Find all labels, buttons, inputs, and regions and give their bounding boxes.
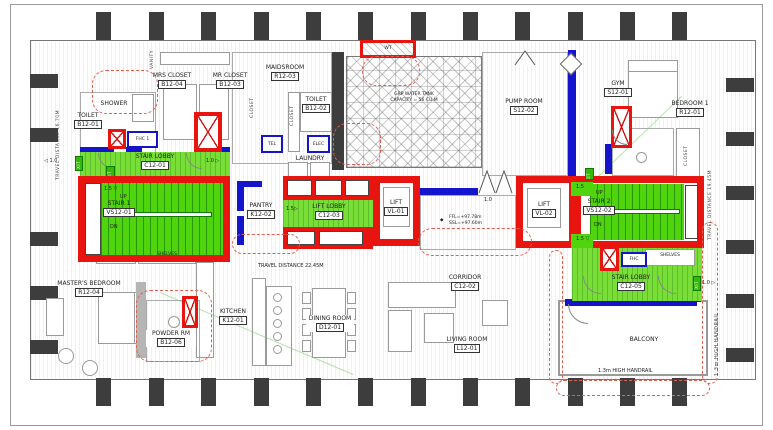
room-name: POWDER RM (146, 330, 196, 338)
arrow-left-icon: ◁ (44, 158, 48, 164)
column (306, 12, 321, 40)
column (96, 12, 111, 40)
room-name: PUMP ROOM (498, 98, 550, 106)
armchair (58, 348, 74, 364)
bed-pillows (628, 60, 678, 72)
room-label-mrs-closet: MRS CLOSET B12-04 (150, 72, 194, 89)
egress-arrow-lift-lobby: 1.5▷ (286, 206, 298, 212)
column (306, 378, 321, 406)
exit-tag: EXIT (75, 156, 83, 171)
room-label-master: MASTER'S BEDROOM R12-04 (56, 280, 122, 297)
room-label-shower: SHOWER (94, 100, 134, 108)
column (463, 12, 478, 40)
column (620, 12, 635, 40)
revision-cloud (556, 380, 710, 396)
room-label-pump-room: PUMP ROOM S12-02 (498, 98, 550, 115)
column (726, 294, 754, 308)
room-number: D12-01 (316, 323, 344, 333)
travel-distance-center: TRAVEL DISTANCE 22.45M (258, 263, 324, 269)
room-label-stair-lobby1: STAIR LOBBY C12-01 (128, 153, 182, 170)
tel-label: TEL (263, 142, 281, 148)
room-number: VS12-02 (583, 206, 614, 216)
egress-width: 1.5 (576, 236, 584, 242)
tel-box: TEL (261, 135, 283, 153)
sink (636, 152, 647, 163)
floor-plan-canvas: EXIT EXIT EXIT EXIT WT FHC 1 TEL (0, 0, 773, 430)
room-name: STAIR LOBBY (604, 274, 658, 282)
shelves-label-left: SHELVES (140, 252, 194, 258)
room-name: SHOWER (94, 100, 134, 108)
egress-width: 1.5 (286, 206, 294, 212)
travel-distance-left: TRAVEL DISTANCE 16.70M (56, 100, 61, 180)
arrow-right-icon: ▷ (294, 206, 298, 212)
egress-width: 1.0 (702, 280, 710, 286)
room-label-laundry: LAUNDRY (290, 155, 330, 163)
chair (302, 340, 311, 352)
stool (273, 306, 282, 315)
exit-label: EXIT (586, 173, 591, 180)
egress-width: 1.5 (104, 186, 112, 192)
column (726, 240, 754, 254)
room-name: MAIDSROOM (262, 64, 308, 72)
closet-label: CLOSET (290, 104, 295, 126)
room-name: DINING ROOM (306, 315, 354, 323)
room-label-bedroom1: BEDROOM 1 R12-01 (664, 100, 716, 117)
stair1-up: UP (120, 194, 127, 200)
fhc1-label: FHC 1 (129, 137, 156, 143)
exit-label: EXIT (694, 281, 699, 291)
column (149, 12, 164, 40)
exit-tag: EXIT (585, 168, 594, 180)
column (254, 378, 269, 406)
ffl-text: FFL=+97.78m (449, 215, 482, 221)
room-number: B12-01 (74, 120, 102, 130)
room-name: TOILET (66, 112, 110, 120)
diamond-marker-icon: ◆ (440, 218, 443, 223)
room-number: C12-05 (617, 282, 645, 292)
level-annotation: FFL=+97.78m SSL=+97.60m (449, 215, 482, 227)
exit-tag: EXIT (693, 276, 701, 291)
arrow-down-icon: ▽ (586, 236, 590, 242)
stool (273, 293, 282, 302)
room-number: K12-02 (247, 210, 274, 220)
room-name: TOILET (298, 96, 334, 104)
ssl-text: SSL=+97.60m (449, 221, 482, 227)
room-number: B12-02 (302, 104, 330, 114)
room-label-lift1: LIFT VL-01 (380, 199, 412, 216)
room-number: R12-04 (75, 288, 103, 298)
double-door-icon (478, 170, 514, 194)
revision-cloud (232, 234, 300, 254)
room-label-lift2: LIFT VL-02 (528, 201, 560, 218)
elec-box: ELEC (307, 135, 330, 153)
room-name: STAIR 2 (580, 198, 618, 206)
room-number: C12-01 (141, 161, 169, 171)
blue-wall (605, 144, 612, 174)
vanity-counter (160, 52, 230, 65)
closet-label: CLOSET (684, 144, 689, 166)
room-label-lift-lobby: LIFT LOBBY C12-03 (304, 203, 354, 220)
fire-shaft-box (194, 112, 222, 152)
room-label-stair1: STAIR 1 VS12-01 (100, 200, 138, 217)
egress-arrow-right-lobby2: 1.0 ▷ (702, 280, 715, 286)
room-label-pantry: PANTRY K12-02 (242, 202, 280, 219)
room-label-toilet2: TOILET B12-02 (298, 96, 334, 113)
room-name: KITCHEN (212, 308, 254, 316)
chair (347, 340, 356, 352)
room-label-balcony: BALCONY (616, 336, 672, 344)
room-number: C12-03 (315, 211, 343, 221)
egress-width: 1.0 (206, 158, 214, 164)
column (30, 340, 58, 354)
fhc2-label: FHC (623, 257, 645, 263)
wt-label: WT (363, 46, 413, 52)
egress-arrow-stair1: 1.5 ▽ (104, 186, 117, 192)
smoke-shaft (85, 183, 101, 255)
room-name: MRS CLOSET (150, 72, 194, 80)
room-name: CORRIDOR (440, 274, 490, 282)
column (411, 378, 426, 406)
blue-wall (244, 181, 262, 187)
egress-width: 1.0 (484, 197, 492, 203)
room-name: MR CLOSET (208, 72, 252, 80)
handrail-label-bottom: 1.3m HIGH HANDRAIL (598, 368, 653, 374)
exit-label: EXIT (76, 161, 81, 171)
shaft-box (319, 231, 363, 245)
column (726, 78, 754, 92)
room-label-water-tank: GRP WATER TANK CAPACITY = 56 CU.M (382, 92, 446, 103)
room-number: VL-02 (532, 209, 555, 219)
room-name: PANTRY (242, 202, 280, 210)
column (30, 74, 58, 88)
egress-arrow-stair2-top: 1.5 (576, 184, 584, 190)
column (30, 128, 58, 142)
egress-arrow-corridor: 1.0 (484, 197, 492, 203)
room-name: STAIR 1 (100, 200, 138, 208)
armchair (82, 360, 98, 376)
room-label-stair-lobby2: STAIR LOBBY C12-05 (604, 274, 658, 291)
room-name: LIFT LOBBY (304, 203, 354, 211)
column (358, 378, 373, 406)
door-icon (514, 50, 536, 66)
travel-distance-right: TRAVEL DISTANCE 19.45M (708, 150, 713, 240)
room-number: S12-02 (510, 106, 537, 116)
arrow-right-icon: ▷ (712, 280, 716, 286)
handrail-label-right: 1.3m HIGH HANDRAIL (714, 306, 720, 376)
column (726, 348, 754, 362)
desk (46, 298, 64, 336)
room-label-stair2: STAIR 2 VS12-02 (580, 198, 618, 215)
room-number: B12-03 (216, 80, 244, 90)
column (726, 186, 754, 200)
blue-wall (420, 188, 478, 195)
shaft-box (315, 180, 342, 196)
column (201, 378, 216, 406)
room-label-powder: POWDER RM B12-06 (146, 330, 196, 347)
room-number: B12-04 (158, 80, 186, 90)
tank-line2: CAPACITY = 56 CU.M (382, 98, 446, 104)
room-number: L12-01 (454, 344, 481, 354)
room-number: R12-03 (271, 72, 299, 82)
column (515, 12, 530, 40)
fire-shaft-box (108, 129, 126, 149)
kitchen-counter (252, 278, 266, 366)
column (149, 378, 164, 406)
level-marker: ◆ (440, 218, 443, 223)
stool (273, 345, 282, 354)
column (515, 378, 530, 406)
room-name: MASTER'S BEDROOM (56, 280, 122, 288)
column (411, 12, 426, 40)
revision-cloud (418, 228, 532, 256)
column (96, 378, 111, 406)
column (30, 232, 58, 246)
laundry-machine (310, 162, 330, 177)
laundry-machine (288, 162, 308, 177)
arrow-right-icon: ▷ (216, 158, 220, 164)
chair (347, 292, 356, 304)
smoke-shaft (685, 185, 698, 239)
fhc2-box: FHC (621, 252, 647, 267)
room-label-mr-closet: MR CLOSET B12-03 (208, 72, 252, 89)
fhc1-box: FHC 1 (127, 131, 158, 148)
stair1-dn: DN (110, 224, 118, 230)
room-name: BEDROOM 1 (664, 100, 716, 108)
column (726, 132, 754, 146)
room-name: LIFT (528, 201, 560, 209)
egress-width: 1.5 (576, 184, 584, 190)
revision-cloud (549, 250, 563, 384)
room-label-gym: GYM S12-01 (600, 80, 636, 97)
stair2-dn: DN (594, 222, 602, 228)
revision-cloud (333, 123, 381, 165)
revision-cloud (136, 290, 212, 362)
room-label-dining: DINING ROOM D12-01 (306, 315, 354, 332)
room-label-maidsroom: MAIDSROOM R12-03 (262, 64, 308, 81)
aov-shaft-box (345, 180, 369, 196)
room-name: GYM (600, 80, 636, 88)
column (358, 12, 373, 40)
room-label-corridor: CORRIDOR C12-02 (440, 274, 490, 291)
egress-arrow-right-lobby: 1.0 ▷ (206, 158, 219, 164)
shelves-label-right: SHELVES (647, 253, 693, 259)
room-label-living: LIVING ROOM L12-01 (440, 336, 494, 353)
room-name: STAIR LOBBY (128, 153, 182, 161)
revision-cloud (362, 56, 420, 86)
room-number: VS12-01 (103, 208, 134, 218)
stool (273, 319, 282, 328)
elec-label: ELEC (309, 142, 328, 148)
side-table (482, 300, 508, 326)
shaft-box (287, 180, 312, 196)
chair (302, 292, 311, 304)
stair2-up: UP (596, 190, 603, 196)
column (672, 12, 687, 40)
sofa-chaise (388, 310, 412, 352)
room-name: LIFT (380, 199, 412, 207)
closet-label: CLOSET (250, 96, 255, 118)
column (568, 12, 583, 40)
fire-shaft-box (600, 246, 619, 271)
egress-arrow-stair2-bottom: 1.5 ▽ (576, 236, 589, 242)
arrow-down-icon: ▽ (114, 186, 118, 192)
room-number: S12-01 (604, 88, 631, 98)
room-name: LIVING ROOM (440, 336, 494, 344)
room-label-toilet1: TOILET B12-01 (66, 112, 110, 129)
column (463, 378, 478, 406)
column (201, 12, 216, 40)
room-number: K12-01 (219, 316, 246, 326)
room-number: VL-01 (384, 207, 407, 217)
room-number: B12-06 (157, 338, 185, 348)
room-name: LAUNDRY (290, 155, 330, 163)
room-number: R12-01 (676, 108, 704, 118)
vanity-label: VANITY (150, 53, 155, 69)
room-number: C12-02 (451, 282, 479, 292)
room-name: BALCONY (616, 336, 672, 344)
room-label-kitchen: KITCHEN K12-01 (212, 308, 254, 325)
closet-unit (163, 84, 197, 140)
column (254, 12, 269, 40)
